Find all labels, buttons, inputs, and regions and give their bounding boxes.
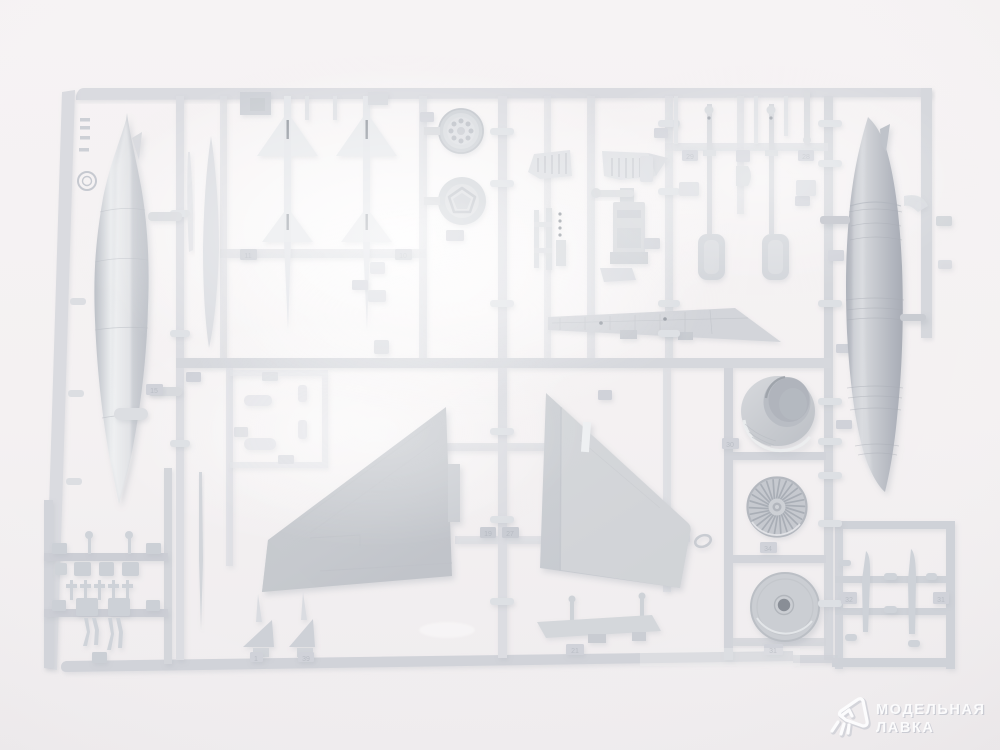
- svg-text:27: 27: [506, 531, 514, 538]
- svg-text:34: 34: [764, 546, 772, 553]
- svg-text:32: 32: [845, 597, 853, 604]
- svg-text:15: 15: [150, 388, 158, 395]
- svg-text:30: 30: [726, 442, 734, 449]
- svg-text:МОДЕЛЬНАЯ: МОДЕЛЬНАЯ: [876, 702, 986, 718]
- svg-text:21: 21: [571, 648, 579, 655]
- svg-text:31: 31: [769, 648, 777, 655]
- svg-text:1: 1: [254, 656, 258, 663]
- svg-text:39: 39: [302, 656, 310, 663]
- svg-text:31: 31: [937, 597, 945, 604]
- svg-text:ЛАВКА: ЛАВКА: [876, 720, 934, 736]
